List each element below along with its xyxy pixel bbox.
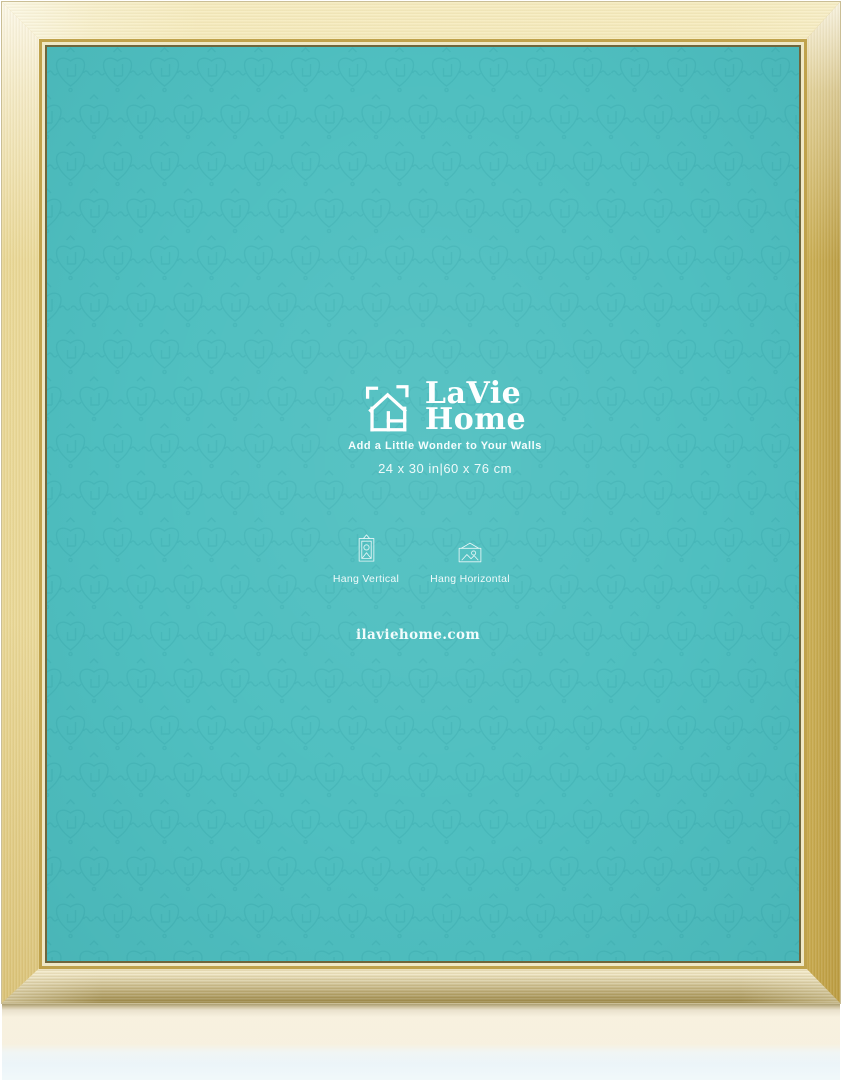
brand-tagline: Add a Little Wonder to Your Walls <box>348 440 542 452</box>
table-reflection <box>2 1004 840 1080</box>
hang-vertical-icon <box>356 533 377 563</box>
hang-options: Hang Vertical Hang Horizontal <box>317 533 519 585</box>
product-photo: LaVie Home Add a Little Wonder to Your W… <box>0 0 846 1080</box>
frame-size-label: 24 x 30 in|60 x 76 cm <box>378 461 512 476</box>
brand-website: ilaviehome.com <box>356 627 480 643</box>
hang-vertical-label: Hang Vertical <box>333 573 399 585</box>
brand-name-line2: Home <box>425 407 526 433</box>
hang-horizontal-label: Hang Horizontal <box>430 573 510 585</box>
hang-horizontal-icon-box <box>456 533 484 563</box>
picture-frame: LaVie Home Add a Little Wonder to Your W… <box>2 2 840 1003</box>
backing-board: LaVie Home Add a Little Wonder to Your W… <box>47 47 799 961</box>
hang-option-vertical: Hang Vertical <box>317 533 415 585</box>
brand-row: LaVie Home <box>364 381 526 433</box>
lavie-home-logo-icon <box>364 383 411 432</box>
hang-vertical-icon-box <box>356 533 377 563</box>
hang-horizontal-icon <box>456 542 484 563</box>
brand-name: LaVie Home <box>425 381 526 433</box>
hang-option-horizontal: Hang Horizontal <box>421 533 519 585</box>
board-content: LaVie Home Add a Little Wonder to Your W… <box>47 47 799 961</box>
brand-block: LaVie Home Add a Little Wonder to Your W… <box>348 381 542 476</box>
